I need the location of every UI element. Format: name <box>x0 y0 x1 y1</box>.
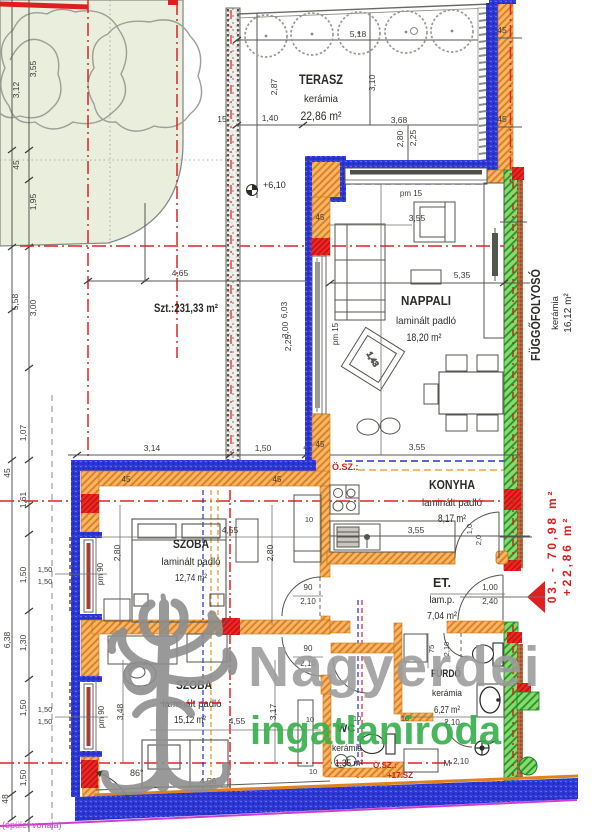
svg-text:ingatlaniroda: ingatlaniroda <box>250 709 502 753</box>
svg-text:FÜGGŐFOLYOSÓ: FÜGGŐFOLYOSÓ <box>528 269 543 361</box>
svg-text:Nagyerdei: Nagyerdei <box>248 635 542 699</box>
svg-text:2,80: 2,80 <box>112 544 122 561</box>
svg-text:TERASZ: TERASZ <box>299 72 343 87</box>
svg-text:pm 15: pm 15 <box>331 322 340 345</box>
svg-text:3,55: 3,55 <box>408 525 425 535</box>
svg-text:90: 90 <box>304 583 313 592</box>
svg-text:1,61: 1,61 <box>18 491 28 508</box>
svg-text:2,25: 2,25 <box>283 334 293 351</box>
svg-text:45: 45 <box>497 114 507 124</box>
svg-text:Szt.:231,33 m²: Szt.:231,33 m² <box>154 301 218 315</box>
svg-text:15: 15 <box>217 114 227 124</box>
svg-text:86°: 86° <box>130 768 144 778</box>
svg-text:1,50: 1,50 <box>38 705 53 714</box>
svg-text:18,20 m²: 18,20 m² <box>407 332 442 344</box>
svg-text:laminált padló: laminált padló <box>422 497 482 509</box>
svg-text:1,50: 1,50 <box>18 566 28 583</box>
svg-text:3,68: 3,68 <box>391 115 408 125</box>
svg-text:3,12: 3,12 <box>11 81 21 98</box>
svg-text:Ö.SZ.:: Ö.SZ.: <box>332 462 359 472</box>
svg-text:2,80: 2,80 <box>265 544 275 561</box>
svg-text:45: 45 <box>2 468 12 478</box>
svg-text:+22,86 m²: +22,86 m² <box>560 516 574 596</box>
svg-text:3,55: 3,55 <box>409 213 426 223</box>
svg-text:3,10: 3,10 <box>367 74 377 91</box>
svg-text:45: 45 <box>316 440 325 449</box>
svg-text:SZOBA: SZOBA <box>173 537 209 551</box>
svg-text:Ö.SZ.:: Ö.SZ.: <box>373 761 397 770</box>
svg-text:2,25: 2,25 <box>408 129 418 146</box>
svg-text:lam.p.: lam.p. <box>430 595 455 606</box>
svg-text:3,00: 3,00 <box>28 299 38 316</box>
svg-text:6,03: 6,03 <box>279 301 289 318</box>
svg-text:1,50: 1,50 <box>255 443 272 453</box>
svg-text:M: M <box>443 758 450 768</box>
svg-text:1,30: 1,30 <box>18 634 28 651</box>
svg-text:10: 10 <box>305 515 313 524</box>
svg-text:8,17 m²: 8,17 m² <box>438 513 466 525</box>
svg-text:1,50: 1,50 <box>18 769 28 786</box>
svg-text:5,35: 5,35 <box>454 270 471 280</box>
svg-text:16,12 m²: 16,12 m² <box>563 293 574 333</box>
svg-text:2,10: 2,10 <box>300 597 316 606</box>
svg-text:5,18: 5,18 <box>350 29 367 39</box>
svg-text:1,50: 1,50 <box>38 717 53 726</box>
svg-text:ET.: ET. <box>433 576 451 590</box>
svg-text:KONYHA: KONYHA <box>429 477 475 492</box>
svg-text:12,74 m²: 12,74 m² <box>175 572 207 584</box>
svg-text:3,48: 3,48 <box>115 703 125 720</box>
svg-text:1,50: 1,50 <box>38 565 53 574</box>
svg-text:6,38: 6,38 <box>2 631 12 648</box>
svg-text:kerámia: kerámia <box>304 93 338 105</box>
svg-text:kerámia: kerámia <box>550 295 561 330</box>
svg-text:5,58: 5,58 <box>10 293 20 310</box>
svg-text:3,55: 3,55 <box>409 442 426 452</box>
svg-text:laminált padló: laminált padló <box>396 315 456 327</box>
svg-text:3,55: 3,55 <box>28 60 38 77</box>
svg-text:2,10: 2,10 <box>453 757 469 766</box>
svg-text:45: 45 <box>497 25 507 35</box>
svg-text:45: 45 <box>11 160 21 170</box>
svg-text:pm 15: pm 15 <box>400 189 423 198</box>
svg-text:1,40: 1,40 <box>262 113 279 123</box>
svg-text:03. - 70,98 m²: 03. - 70,98 m² <box>545 489 559 604</box>
svg-text:4,55: 4,55 <box>229 716 246 726</box>
svg-text:NAPPALI: NAPPALI <box>401 293 451 308</box>
svg-text:1,00: 1,00 <box>482 583 498 592</box>
svg-text:1,95: 1,95 <box>28 193 38 210</box>
svg-text:1,0: 1,0 <box>465 524 474 534</box>
svg-text:(épület vonala): (épület vonala) <box>2 820 62 830</box>
svg-text:1,50: 1,50 <box>18 699 28 716</box>
svg-text:48: 48 <box>0 794 10 804</box>
svg-text:45: 45 <box>316 213 325 222</box>
svg-text:2,0: 2,0 <box>474 535 483 545</box>
svg-text:+6,10: +6,10 <box>263 180 286 190</box>
svg-text:45: 45 <box>122 475 131 484</box>
svg-text:22,86 m²: 22,86 m² <box>301 109 342 123</box>
svg-text:10: 10 <box>309 767 317 776</box>
svg-text:2,80: 2,80 <box>395 130 405 147</box>
svg-text:laminált padló: laminált padló <box>162 557 221 568</box>
svg-text:2,87: 2,87 <box>269 78 279 95</box>
svg-text:7,04 m²: 7,04 m² <box>427 610 457 622</box>
svg-text:1,50: 1,50 <box>38 577 53 586</box>
svg-text:2,40: 2,40 <box>482 597 498 606</box>
svg-text:1,07: 1,07 <box>18 424 28 441</box>
svg-text:45: 45 <box>273 475 282 484</box>
svg-text:3,14: 3,14 <box>144 443 161 453</box>
svg-text:1,35 m²: 1,35 m² <box>335 758 363 769</box>
svg-text:4,55: 4,55 <box>222 525 239 535</box>
svg-text:4,65: 4,65 <box>172 268 189 278</box>
